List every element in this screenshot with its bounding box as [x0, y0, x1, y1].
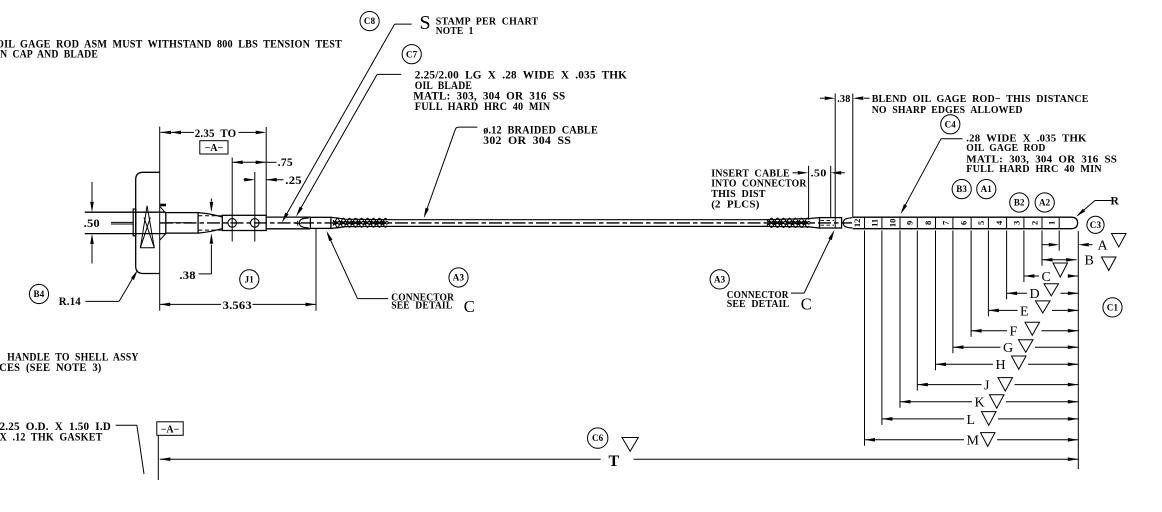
- svg-text:.75: .75: [278, 157, 293, 169]
- svg-text:A1: A1: [981, 184, 993, 194]
- svg-text:C1: C1: [1107, 303, 1119, 313]
- svg-text:G: G: [1003, 341, 1013, 356]
- svg-text:C4: C4: [945, 119, 957, 129]
- svg-text:A3: A3: [714, 275, 726, 285]
- svg-text:10: 10: [887, 219, 897, 228]
- svg-text:FULL HARD HRC 40 MIN: FULL HARD HRC 40 MIN: [966, 163, 1102, 175]
- svg-text:.25: .25: [285, 175, 302, 187]
- svg-text:L: L: [967, 413, 976, 428]
- svg-text:BETWEEN CAP AND BLADE: BETWEEN CAP AND BLADE: [0, 47, 98, 61]
- svg-text:FULL HARD HRC 40 MIN: FULL HARD HRC 40 MIN: [415, 101, 551, 113]
- svg-text:7: 7: [940, 220, 950, 225]
- svg-text:E: E: [1020, 304, 1029, 319]
- svg-text:.38: .38: [837, 93, 851, 105]
- svg-text:S: S: [420, 12, 431, 34]
- svg-text:.38: .38: [179, 270, 195, 282]
- svg-text:11: 11: [869, 219, 879, 227]
- svg-text:R: R: [1111, 196, 1120, 208]
- svg-text:A3: A3: [453, 273, 465, 283]
- svg-text:.50: .50: [84, 218, 100, 230]
- svg-text:C: C: [1042, 270, 1051, 285]
- svg-text:2: 2: [1029, 221, 1039, 225]
- svg-text:9: 9: [905, 221, 915, 225]
- svg-text:X .12 THK GASKET: X .12 THK GASKET: [0, 431, 103, 443]
- svg-text:C: C: [801, 295, 812, 314]
- svg-text:3: 3: [1011, 221, 1021, 225]
- svg-text:4: 4: [994, 220, 1004, 225]
- svg-text:1: 1: [1047, 221, 1057, 225]
- svg-text:C6: C6: [592, 433, 604, 443]
- svg-text:J1: J1: [245, 275, 255, 285]
- svg-text:R.14: R.14: [59, 296, 81, 308]
- svg-text:5: 5: [976, 221, 986, 225]
- svg-text:D: D: [1030, 287, 1040, 302]
- svg-text:J: J: [984, 379, 990, 394]
- svg-text:T: T: [609, 453, 620, 470]
- svg-text:2.35 TO: 2.35 TO: [195, 128, 237, 140]
- svg-text:3.563: 3.563: [223, 300, 252, 312]
- svg-text:(2 PLCS): (2 PLCS): [711, 199, 760, 211]
- svg-text:K: K: [975, 396, 985, 411]
- svg-text:OIL GAGE ROD: OIL GAGE ROD: [966, 142, 1045, 154]
- svg-text:B3: B3: [956, 184, 967, 194]
- svg-text:NOTE 1: NOTE 1: [436, 25, 474, 37]
- svg-text:H: H: [996, 358, 1006, 373]
- svg-text:−A−: −A−: [161, 424, 180, 435]
- svg-text:B2: B2: [1014, 198, 1025, 208]
- svg-text:M: M: [967, 434, 980, 449]
- svg-text:C7: C7: [406, 49, 418, 59]
- svg-text:A: A: [1098, 239, 1109, 254]
- svg-text:A2: A2: [1039, 198, 1051, 208]
- svg-text:12: 12: [852, 219, 862, 228]
- svg-text:−A−: −A−: [205, 143, 224, 154]
- svg-text:SEE DETAIL: SEE DETAIL: [727, 299, 790, 310]
- svg-text:C3: C3: [1090, 220, 1102, 230]
- svg-text:PLACES (SEE NOTE 3): PLACES (SEE NOTE 3): [0, 362, 102, 374]
- svg-text:302 OR 304 SS: 302 OR 304 SS: [483, 135, 571, 147]
- svg-text:SEE DETAIL: SEE DETAIL: [391, 301, 452, 312]
- svg-text:C8: C8: [364, 16, 376, 26]
- svg-text:8: 8: [923, 221, 933, 225]
- svg-text:F: F: [1010, 325, 1018, 340]
- svg-text:B: B: [1085, 254, 1094, 269]
- svg-text:C: C: [464, 297, 475, 316]
- svg-text:.50: .50: [811, 168, 827, 180]
- svg-text:6: 6: [959, 221, 969, 225]
- svg-text:NO SHARP EDGES ALLOWED: NO SHARP EDGES ALLOWED: [872, 104, 1023, 116]
- svg-text:B4: B4: [34, 289, 45, 299]
